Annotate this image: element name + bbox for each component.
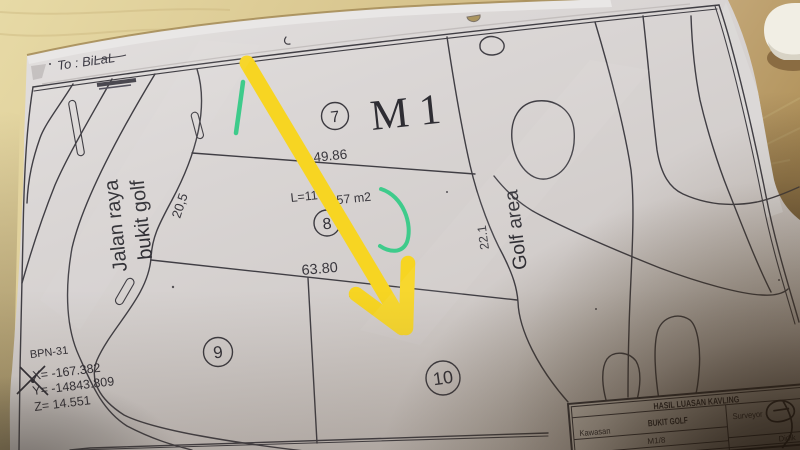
svg-text:63.80: 63.80 xyxy=(301,260,339,279)
svg-text:L=11: L=11 xyxy=(290,188,319,205)
svg-text:M 1: M 1 xyxy=(368,86,443,140)
